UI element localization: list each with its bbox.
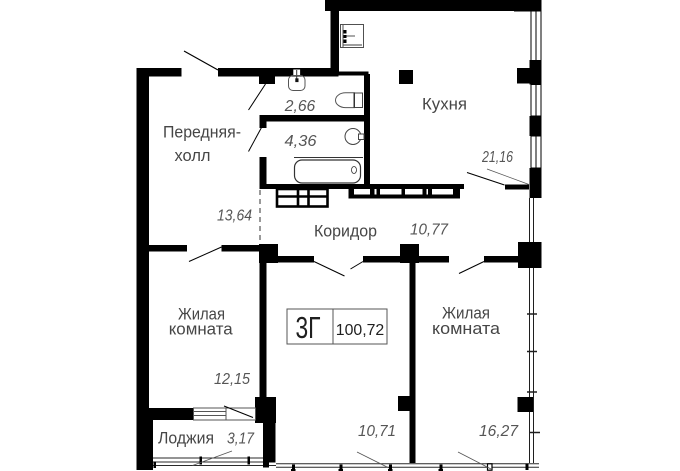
svg-text:2,66: 2,66	[284, 98, 316, 115]
svg-text:13,64: 13,64	[217, 208, 252, 225]
svg-text:комната: комната	[432, 319, 501, 338]
svg-text:16,27: 16,27	[479, 423, 519, 440]
svg-text:100,72: 100,72	[336, 322, 385, 339]
svg-text:3Г: 3Г	[296, 310, 321, 345]
svg-text:Кухня: Кухня	[422, 95, 467, 114]
svg-text:10,77: 10,77	[410, 222, 449, 239]
svg-text:3,17: 3,17	[227, 431, 255, 448]
svg-text:21,16: 21,16	[481, 149, 513, 166]
svg-text:Коридор: Коридор	[314, 222, 377, 241]
svg-text:12,15: 12,15	[214, 371, 250, 388]
svg-text:4,36: 4,36	[285, 133, 317, 150]
svg-text:комната: комната	[169, 320, 234, 339]
svg-text:холл: холл	[175, 146, 211, 165]
svg-text:10,71: 10,71	[358, 423, 396, 440]
svg-text:Лоджия: Лоджия	[158, 429, 214, 448]
svg-text:Передняя-: Передняя-	[163, 123, 241, 142]
